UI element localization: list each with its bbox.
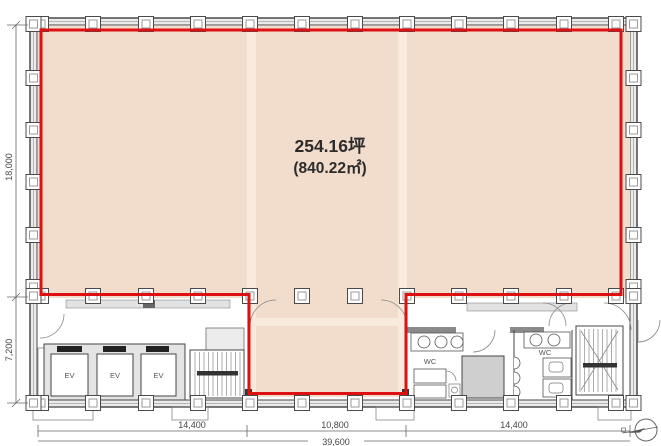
corridor-partition (467, 303, 577, 311)
toilet-stall (543, 358, 571, 377)
sink (548, 334, 560, 346)
elevator-door (57, 346, 82, 352)
stair-handrail (197, 371, 238, 376)
pipe-shaft (462, 356, 504, 398)
area-label-sqm: (840.22㎡) (293, 158, 366, 177)
stair-handrail (583, 363, 617, 368)
dim-bottom-right: 14,400 (500, 420, 528, 430)
elevator-label: EV (153, 371, 163, 380)
elevator-door (146, 346, 169, 352)
dim-left-lower: 7,200 (4, 339, 14, 362)
wall-segment (407, 327, 456, 333)
wc-label: WC (539, 348, 552, 357)
toilet-stall (414, 369, 446, 383)
sink (530, 334, 542, 346)
exterior-canopies (33, 407, 631, 420)
toilet-stall (414, 385, 446, 398)
wc-label: WC (424, 357, 437, 366)
elevator-label: EV (64, 371, 74, 380)
elevator-label: EV (110, 371, 120, 380)
dim-bottom-total: 39,600 (322, 437, 350, 446)
dim-bottom-left: 14,400 (178, 420, 206, 430)
stair-landing (206, 328, 244, 350)
north-arrow-icon (622, 419, 659, 441)
dim-bottom-center: 10,800 (321, 420, 349, 430)
dim-left-upper: 18,000 (4, 153, 14, 181)
sink (418, 336, 430, 348)
elevator-door (103, 346, 126, 352)
exit-door-arc (638, 320, 660, 342)
sink (435, 336, 447, 348)
sink (451, 336, 463, 348)
floor-plan: EV EV EV WC (0, 0, 661, 446)
toilet-stall (543, 379, 571, 397)
area-label-tsubo: 254.16坪 (294, 136, 366, 156)
floor-plan-drawing: EV EV EV WC (0, 0, 661, 446)
